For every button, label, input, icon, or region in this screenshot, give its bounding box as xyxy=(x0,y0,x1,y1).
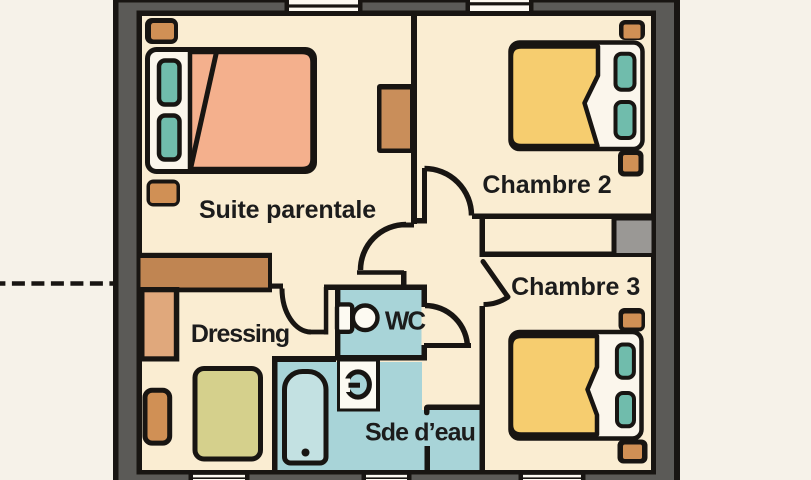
svg-text:Chambre 3: Chambre 3 xyxy=(511,273,640,301)
svg-text:Dressing: Dressing xyxy=(191,320,289,348)
svg-text:Sde d’eau: Sde d’eau xyxy=(365,419,475,447)
svg-text:Chambre 2: Chambre 2 xyxy=(482,171,611,199)
svg-text:Suite parentale: Suite parentale xyxy=(199,196,376,224)
svg-text:WC: WC xyxy=(385,306,427,336)
